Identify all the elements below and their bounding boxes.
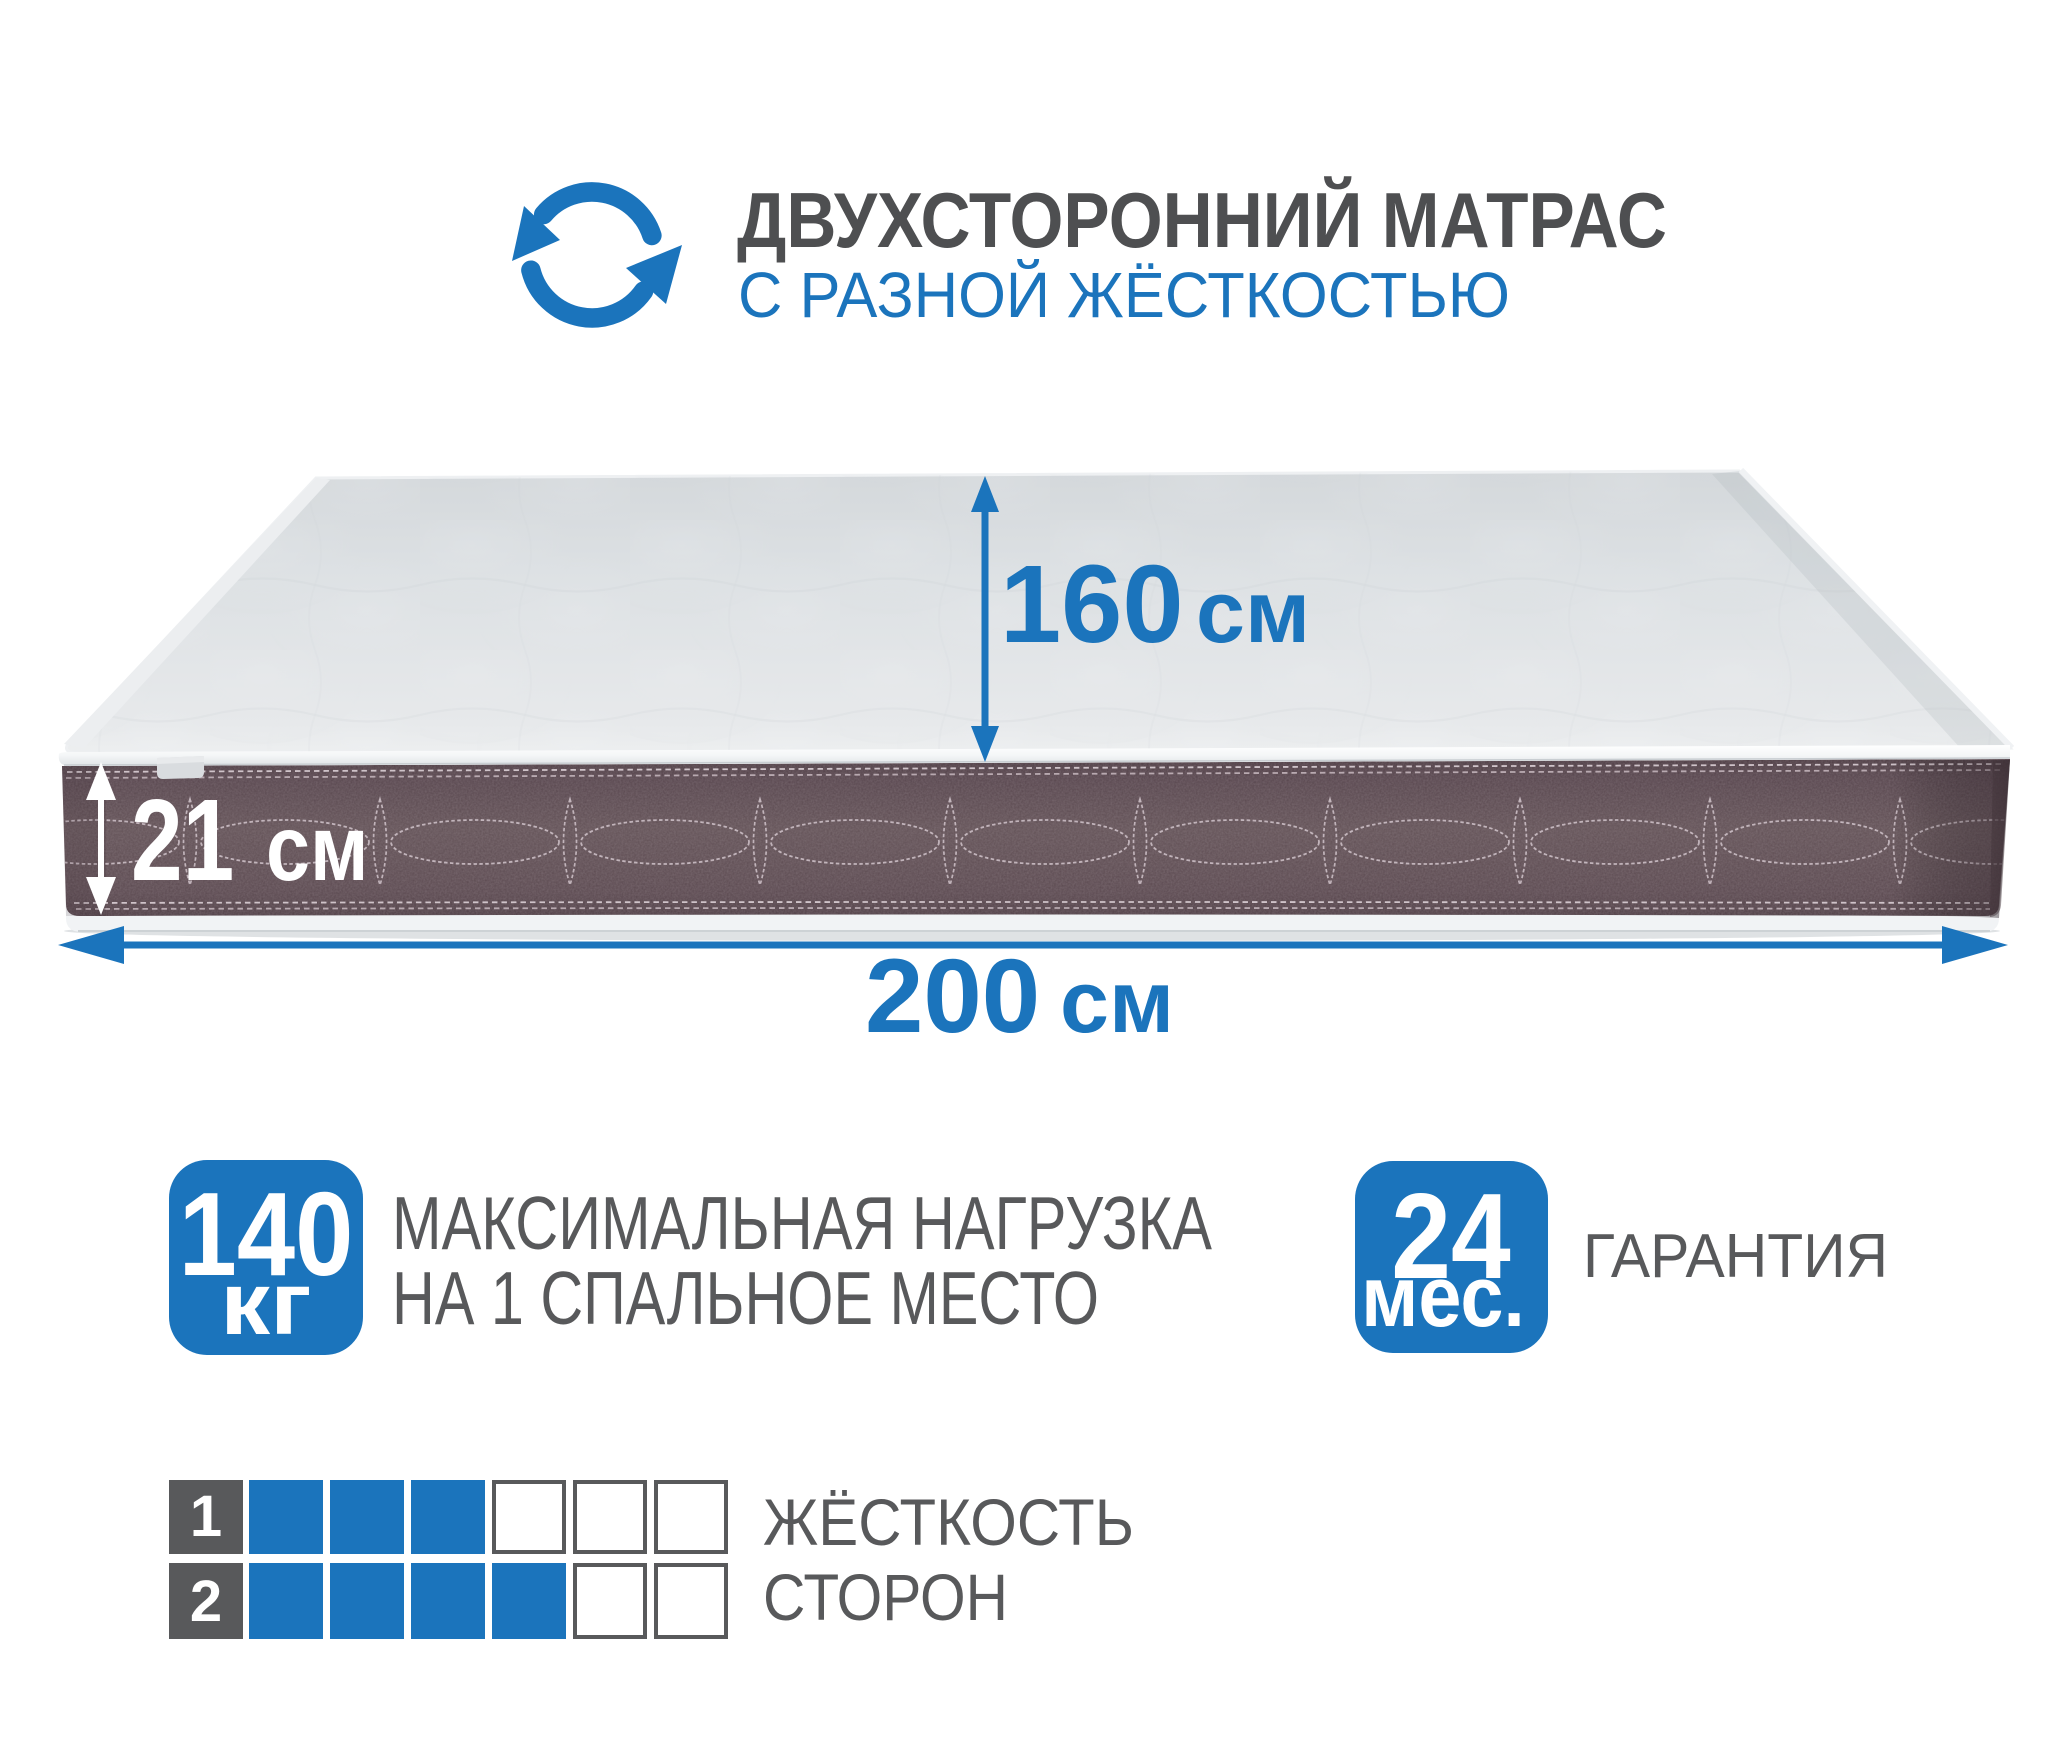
svg-text:СТОРОН: СТОРОН [763,1560,1008,1634]
svg-text:1: 1 [190,1484,222,1549]
svg-text:21: 21 [131,776,234,905]
svg-text:мес.: мес. [1361,1249,1525,1345]
svg-text:С РАЗНОЙ ЖЁСТКОСТЬЮ: С РАЗНОЙ ЖЁСТКОСТЬЮ [738,258,1510,331]
svg-text:см: см [1060,952,1174,1051]
svg-text:кг: кг [220,1254,311,1354]
svg-text:см: см [1196,562,1310,661]
svg-text:200: 200 [865,938,1040,1055]
svg-text:см: см [266,797,368,900]
svg-text:ГАРАНТИЯ: ГАРАНТИЯ [1583,1222,1888,1291]
svg-text:ДВУХСТОРОННИЙ МАТРАС: ДВУХСТОРОННИЙ МАТРАС [737,176,1667,264]
svg-text:2: 2 [190,1569,222,1634]
svg-text:МАКСИМАЛЬНАЯ НАГРУЗКА: МАКСИМАЛЬНАЯ НАГРУЗКА [392,1181,1212,1265]
svg-text:НА 1 СПАЛЬНОЕ МЕСТО: НА 1 СПАЛЬНОЕ МЕСТО [392,1256,1099,1340]
svg-text:160: 160 [1000,543,1184,666]
svg-text:ЖЁСТКОСТЬ: ЖЁСТКОСТЬ [763,1485,1134,1559]
